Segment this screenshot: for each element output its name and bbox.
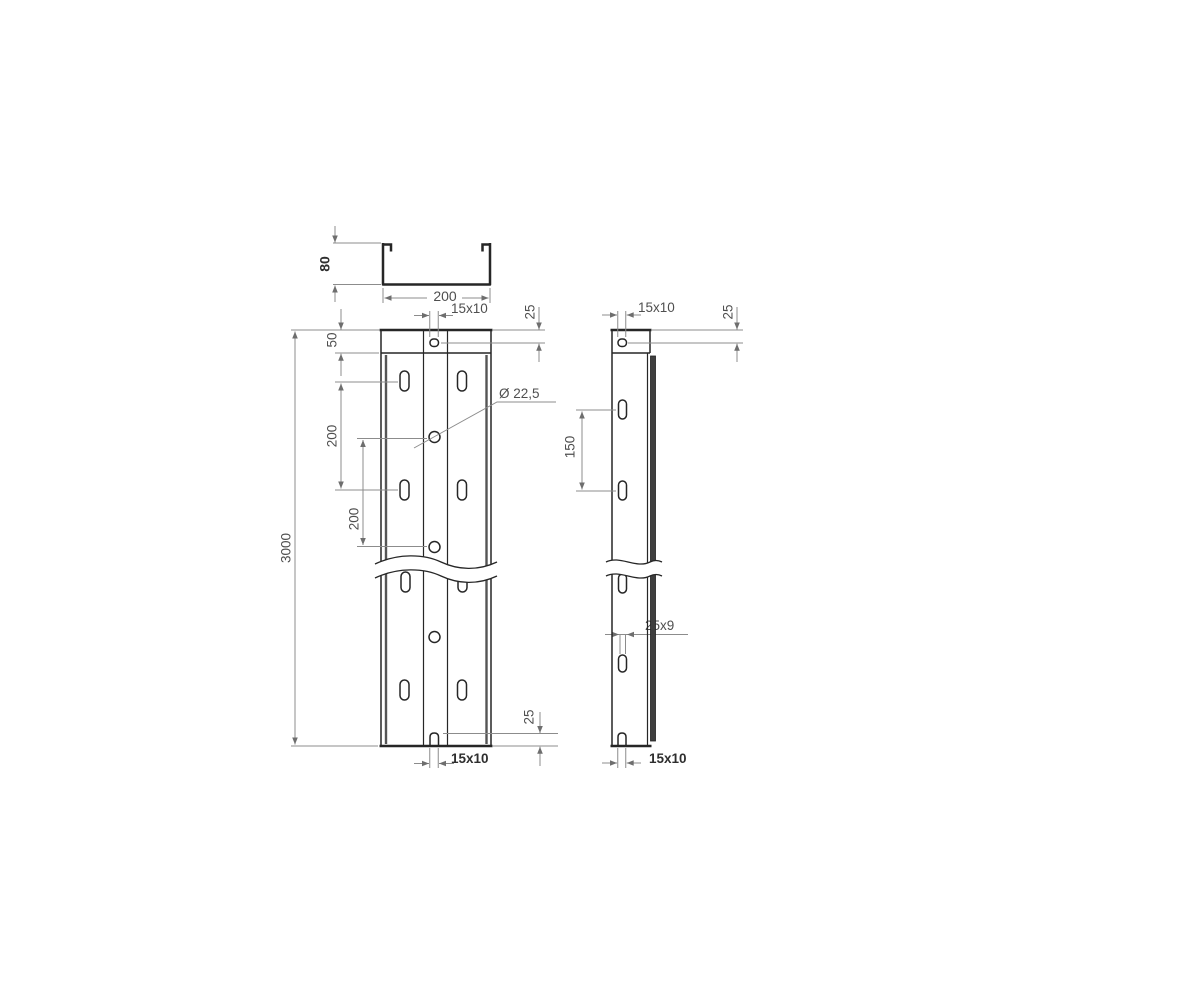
top-offset-label: 25 [523, 304, 538, 319]
cross-section-height-label: 80 [317, 256, 333, 272]
cross-section-view: 80 200 [317, 226, 490, 304]
slot-hole [458, 371, 467, 391]
front-view [375, 330, 497, 746]
slot-hole [400, 680, 409, 700]
hole-pitch-label: 200 [347, 508, 362, 531]
slot-hole [619, 400, 627, 419]
front-view-dimensions: 3000 50 200 200 15x10 25 Ø 22,5 [279, 301, 558, 768]
side-slot-hole [619, 655, 627, 672]
round-hole [429, 632, 440, 643]
end-band-label: 50 [325, 332, 340, 347]
technical-drawing: 80 200 [0, 0, 1200, 1000]
slot-hole [400, 371, 409, 391]
slot-hole [400, 480, 409, 500]
side-view [606, 330, 662, 746]
top-band-slot-hole [430, 339, 439, 347]
slot-pitch-label: 150 [563, 436, 578, 459]
bottom-edge-slot [430, 733, 439, 746]
side-slot-callout: 25x9 [605, 618, 688, 654]
drawing-canvas: 80 200 [0, 0, 1200, 1000]
side-slot-label: 25x9 [645, 618, 674, 633]
length-label: 3000 [279, 533, 294, 563]
bottom-slot-label: 15x10 [451, 751, 489, 766]
bottom-slot-label: 15x10 [649, 751, 687, 766]
slot-hole [619, 481, 627, 500]
slot-hole [458, 480, 467, 500]
top-band-slot-hole [618, 339, 627, 347]
bottom-offset-label: 25 [522, 709, 537, 724]
top-slot-label: 15x10 [638, 300, 675, 315]
round-hole [429, 542, 440, 553]
bottom-edge-slot [618, 733, 626, 746]
hole-diameter-label: Ø 22,5 [499, 386, 540, 401]
top-slot-label: 15x10 [451, 301, 488, 316]
top-offset-label: 25 [721, 304, 736, 319]
slot-pitch-label: 200 [325, 425, 340, 448]
slot-hole [458, 680, 467, 700]
side-flange-strip [651, 356, 656, 741]
